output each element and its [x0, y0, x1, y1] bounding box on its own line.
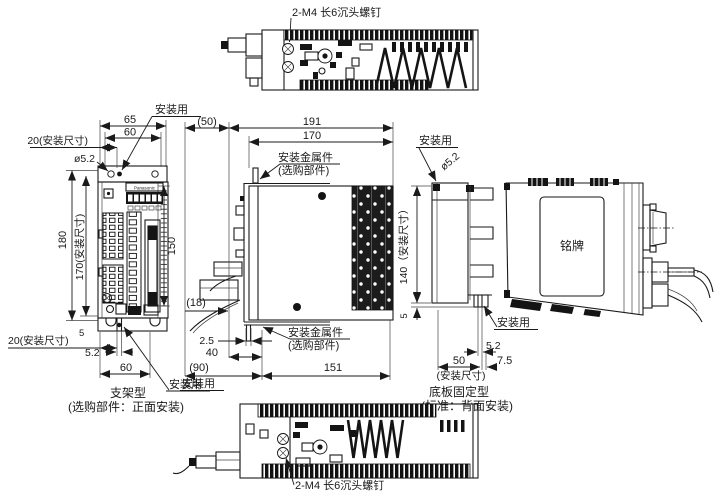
dim-75: 7.5: [497, 355, 512, 367]
front-view: Panasonic: [98, 166, 168, 331]
dim-90: (90): [189, 362, 209, 374]
drawing-canvas: 2-M4 长6沉头螺钉: [0, 0, 715, 501]
front-mount-hole-mark: [117, 172, 122, 177]
dim-180: 180: [57, 231, 69, 249]
dim-40: 40: [206, 347, 218, 359]
dim-5-rear: 5: [399, 313, 410, 318]
front-bracket-hole-left: [108, 171, 114, 177]
bottom-view: 2-M4 长6沉头螺钉: [173, 404, 478, 492]
top-screw-note: 2-M4 长6沉头螺钉: [292, 6, 381, 19]
dim-20-top: 20(安装尺寸): [27, 134, 88, 147]
bottom-view-parts: [246, 422, 356, 466]
top-view: 2-M4 长6沉头螺钉: [221, 6, 478, 90]
mount-label-mid: 安装用: [182, 376, 215, 390]
fitting-label-top-1: 安装金属件: [278, 150, 333, 164]
front-bottom-hole-mark: [117, 323, 121, 327]
fitting-label-top-2: (选购部件): [278, 163, 329, 177]
dim-18: (18): [186, 297, 206, 309]
top-vent-comb: [284, 30, 472, 40]
dim-151: 151: [324, 362, 342, 374]
dim-25: 2.5: [199, 335, 214, 347]
fitting-label-bottom-2: (选购部件): [288, 338, 339, 352]
top-view-connector: [221, 34, 262, 86]
rear-caption-1: 底板固定型: [429, 384, 489, 399]
mount-label-rear-top: 安装用: [419, 133, 452, 147]
dim-dia52-rear: ø5.2: [438, 150, 462, 173]
dim-60-bottom: 60: [120, 362, 132, 374]
dim-20-bottom: 20(安装尺寸): [8, 334, 69, 347]
fitting-label-bottom-1: 安装金属件: [288, 325, 343, 339]
rear-bottom-tab: [474, 295, 488, 307]
side-front-connectors: [190, 196, 244, 333]
dim-170: 170: [303, 130, 321, 142]
dim-50-rear: 50: [453, 355, 465, 367]
dimension-drawing-page: 2-M4 长6沉头螺钉: [0, 0, 715, 501]
front-bracket-hole-right: [152, 171, 158, 177]
dim-52-rear: 5.2: [486, 340, 501, 352]
front-caption-1: 支架型: [110, 386, 146, 400]
rear-plate: [432, 183, 468, 303]
right-side-view: 铭牌: [504, 178, 713, 322]
dim-5-front: 5: [79, 328, 84, 339]
rear-mount-hole-mark: [433, 184, 440, 191]
nameplate-label: 铭牌: [560, 238, 584, 253]
dim-50: (50): [197, 116, 217, 128]
side-view: [190, 168, 393, 341]
dim-52-front: 5.2: [85, 347, 100, 359]
rear-flange-tabs: [468, 188, 493, 295]
brand-label: Panasonic: [134, 186, 156, 191]
dim-191: 191: [303, 116, 321, 128]
bottom-countersunk-screws: [278, 434, 289, 459]
bottom-view-connector: [173, 452, 240, 474]
side-heatsink: [352, 186, 393, 310]
mount-label-top-left: 安装用: [155, 102, 188, 116]
dim-note: (安装尺寸): [437, 369, 486, 382]
mount-label-rear-bottom: 安装用: [497, 315, 530, 329]
right-view-connectors: [638, 204, 713, 322]
dim-170-vert: 170(安装尺寸): [73, 214, 86, 281]
rear-plate-view: [432, 183, 493, 307]
top-view-parts: [300, 40, 372, 79]
dim-60-top: 60: [124, 127, 136, 139]
dim-dia52-front: ø5.2: [74, 153, 95, 165]
dim-65: 65: [124, 114, 136, 126]
dim-140: 140（安装尺寸）: [397, 204, 410, 285]
bottom-heatsink-fins: [348, 420, 403, 458]
front-panel-details: Panasonic: [99, 183, 163, 315]
bottom-screw-note: 2-M4 长6沉头螺钉: [295, 479, 384, 492]
dim-150: 150: [166, 237, 178, 255]
front-caption-2: (选购部件：正面安装): [68, 399, 184, 414]
front-bottom-bracket: [98, 318, 167, 331]
